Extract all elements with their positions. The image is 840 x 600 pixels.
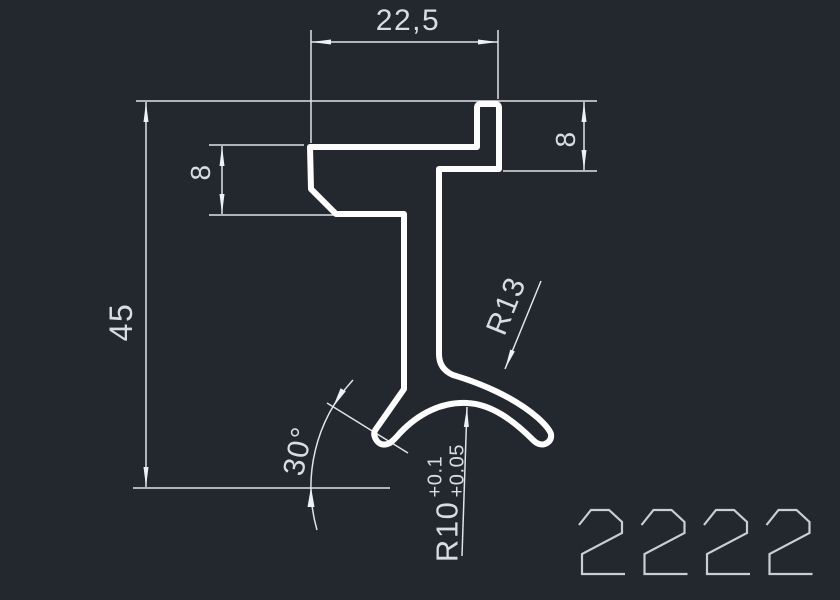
cad-viewport: 22,5 45 8 8 R13 30° R10 +0.1 +0.05 <box>0 0 840 600</box>
dim-label-left-thickness: 8 <box>187 164 215 181</box>
dim-label-top-width: 22,5 <box>376 6 440 36</box>
arc-30deg <box>311 380 353 530</box>
drawing-number <box>579 510 813 574</box>
cad-drawing <box>0 0 840 600</box>
dim-label-right-height: 8 <box>552 131 580 148</box>
ref-line-30deg <box>327 403 408 453</box>
dim-label-inner-radius: R10 +0.1 +0.05 <box>425 444 468 562</box>
inner-radius-value: R10 <box>432 501 463 563</box>
dim-label-overall-height: 45 <box>105 303 137 342</box>
arrow-30deg-upper <box>333 388 346 407</box>
arrow-30deg-lower <box>308 487 315 507</box>
tolerance-lower: +0.05 <box>447 444 469 498</box>
inner-radius-tolerances: +0.1 +0.05 <box>425 444 468 498</box>
profile-outline <box>310 104 551 445</box>
tolerance-upper: +0.1 <box>425 444 447 498</box>
